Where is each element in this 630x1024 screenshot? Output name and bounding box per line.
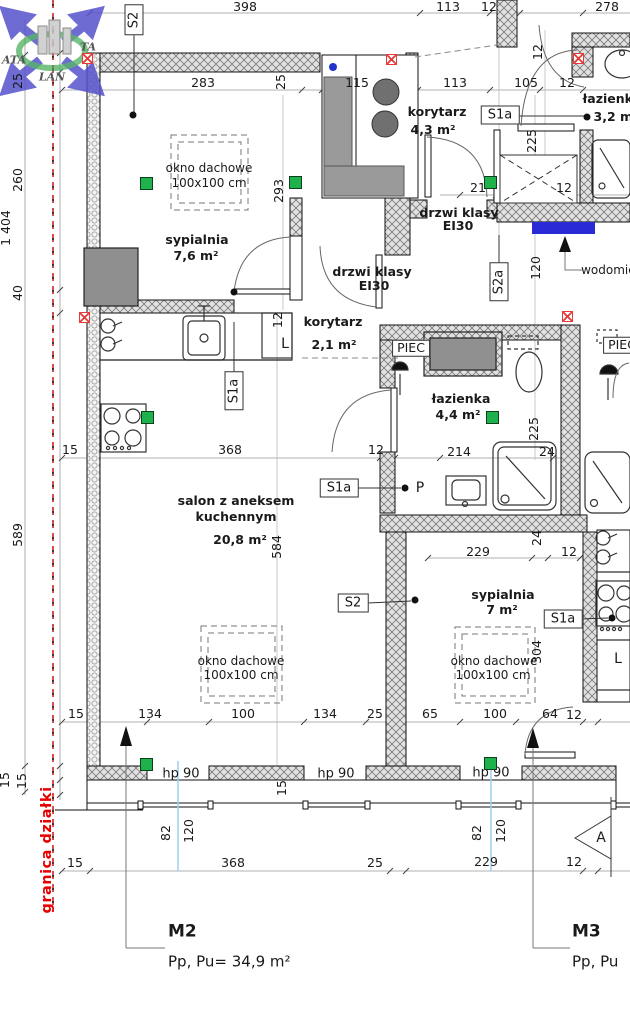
dim-label: 113: [436, 1, 460, 14]
door-swing-arc: [234, 237, 290, 292]
room-area-lazienka-44: 4,4 m²: [436, 409, 481, 422]
door-leaf: [425, 135, 431, 197]
dim-label: 12: [532, 44, 545, 60]
dim-label: 225: [526, 129, 539, 153]
dim-label: 82: [471, 825, 484, 841]
vent-marker-icon: [140, 177, 153, 190]
room-name-korytarz-21: korytarz: [304, 316, 363, 329]
s1a-tag: S1a: [225, 372, 244, 411]
reference-dot: [584, 114, 591, 121]
room-area-sypialnia-7: 7 m²: [486, 604, 518, 617]
dim-label: 368: [221, 857, 245, 870]
dim-label: 1 404: [0, 210, 12, 246]
vent-marker-icon: [289, 176, 302, 189]
m2-arrow: [120, 726, 132, 746]
s1a-tag: S1a: [481, 106, 520, 125]
toilet: [508, 336, 542, 392]
room-area-korytarz-21: 2,1 m²: [312, 339, 357, 352]
room-area-lazienka-32: 3,2 m²: [594, 111, 630, 124]
reference-dot: [231, 289, 238, 296]
dim-label: 229: [474, 856, 498, 869]
dim-label: 15: [68, 708, 84, 721]
dim-label: 115: [345, 77, 369, 90]
dim-label: 120: [495, 819, 508, 843]
dim-label: 584: [271, 535, 284, 559]
skylight-size: 100x100 cm: [455, 669, 530, 681]
skylight-size: 100x100 cm: [203, 669, 278, 681]
dim-label: 15: [0, 772, 11, 788]
dim-label: 65: [422, 708, 438, 721]
dim-label: 134: [138, 708, 162, 721]
floor-plan-drawing: [0, 0, 630, 1024]
apartment-m3-title: M3: [572, 924, 601, 941]
vent-marker-icon: [484, 757, 497, 770]
furnace: [424, 332, 502, 376]
dim-label: 100: [483, 708, 507, 721]
stove: [101, 404, 146, 452]
dim-label: 589: [12, 523, 25, 547]
room-name-lazienka-32: łazienka: [583, 93, 630, 106]
blue-point-marker: [329, 63, 337, 71]
room-name-sypialnia-76: sypialnia: [165, 234, 228, 247]
dim-label: 15: [276, 780, 289, 796]
room-name-lazienka-44: łazienka: [432, 393, 491, 406]
s1a-tag: S1a: [320, 479, 359, 498]
dim-label: 40: [12, 285, 25, 301]
reference-dot: [609, 615, 616, 622]
water-meter-arrow: [559, 236, 571, 252]
dim-label: 24: [531, 530, 544, 546]
furnace-label: PIEC: [392, 340, 430, 357]
watermark-text: LAN: [39, 72, 65, 83]
skylight-label: okno dachowe: [198, 655, 285, 667]
room-name-salon: kuchennym: [196, 511, 277, 524]
plot-boundary-label: granica działki: [40, 786, 55, 913]
room-name-salon: salon z aneksem: [178, 495, 295, 508]
dim-label: 82: [160, 825, 173, 841]
red-cross-marker-icon: [386, 54, 397, 65]
watermark-text: TA: [80, 42, 96, 53]
red-cross-marker-icon: [573, 53, 584, 64]
dim-label: 293: [273, 179, 286, 203]
door-class-label: drzwi klasy: [332, 266, 411, 279]
s2-tag: S2: [338, 594, 369, 613]
kitchen-counter: [100, 313, 292, 360]
s2a-tag: S2a: [490, 263, 509, 302]
dim-label: 12: [566, 856, 582, 869]
dim-label: 260: [12, 168, 25, 192]
washbasin-m3-top: [605, 50, 630, 78]
vent-marker-icon: [484, 176, 497, 189]
dim-label: 25: [12, 73, 25, 89]
dim-label: 120: [183, 819, 196, 843]
dim-label: 25: [275, 74, 288, 90]
dim-label: 12: [368, 444, 384, 457]
apartment-m3-area: Pp, Pu: [572, 955, 618, 970]
vent-marker-icon: [140, 758, 153, 771]
dim-label: 15: [67, 857, 83, 870]
floor-plan: 398113122782832511511310512121 404252604…: [0, 0, 630, 1024]
water-meter-icon: [532, 222, 595, 234]
door-class-label: EI30: [359, 280, 390, 293]
red-cross-marker-icon: [82, 53, 93, 64]
door-leaf: [234, 289, 290, 294]
dim-label: 15: [62, 444, 78, 457]
room-area-salon: 20,8 m²: [213, 534, 267, 547]
m3-arrow: [527, 728, 539, 748]
door-leaf: [391, 388, 397, 452]
dim-label: 12: [561, 546, 577, 559]
shower-m3: [585, 452, 630, 513]
room-area-sypialnia-76: 7,6 m²: [174, 250, 219, 263]
room-name-korytarz-43: korytarz: [408, 106, 467, 119]
room-area-korytarz-43: 4,3 m²: [411, 124, 456, 137]
dim-label: 64: [542, 708, 558, 721]
dim-label: 225: [528, 417, 541, 441]
parapet-height-label: hp 90: [317, 768, 354, 781]
watermark-text: ATA: [2, 55, 26, 66]
dim-label: 113: [443, 77, 467, 90]
dim-label: 24: [539, 446, 555, 459]
dim-label: 100: [231, 708, 255, 721]
room-name-sypialnia-7: sypialnia: [471, 589, 534, 602]
section-marker-label: A: [596, 831, 606, 845]
apartment-m2-area: Pp, Pu= 34,9 m²: [168, 955, 291, 970]
red-cross-marker-icon: [79, 312, 90, 323]
skylight-label: okno dachowe: [451, 655, 538, 667]
dim-label: 283: [191, 77, 215, 90]
reference-dot: [412, 597, 419, 604]
fridge-label: L: [614, 652, 622, 666]
dim-label: 12: [556, 182, 572, 195]
dim-label: 214: [447, 446, 471, 459]
door-class-label: EI30: [443, 220, 474, 233]
dim-label: 12: [566, 709, 582, 722]
kitchen-m3: [596, 330, 630, 690]
red-cross-marker-icon: [562, 311, 573, 322]
washbasin: [446, 476, 486, 507]
s1a-tag: S1a: [544, 610, 583, 629]
window: [611, 801, 630, 809]
bathtub: [592, 140, 630, 198]
dim-label: 25: [367, 857, 383, 870]
dim-label: 398: [233, 1, 257, 14]
skylight-label: okno dachowe: [166, 162, 253, 174]
dim-label: 105: [514, 77, 538, 90]
dim-label: 12: [272, 312, 285, 328]
dim-label: 368: [218, 444, 242, 457]
dim-label: 12: [481, 1, 497, 14]
installation-shaft: [322, 55, 418, 198]
dim-label: 229: [466, 546, 490, 559]
dim-label: 278: [595, 1, 619, 14]
dim-label: 12: [559, 77, 575, 90]
reference-dot: [402, 485, 409, 492]
apartment-m2-title: M2: [168, 924, 197, 941]
water-meter-label: wodomierz: [581, 264, 630, 276]
reference-dot: [130, 112, 137, 119]
vent-marker-icon: [141, 411, 154, 424]
parapet-height-label: hp 90: [162, 768, 199, 781]
fridge-label: L: [281, 337, 289, 351]
skylight-size: 100x100 cm: [171, 177, 246, 189]
dim-label: 25: [367, 708, 383, 721]
p-point-label: P: [416, 481, 424, 495]
dim-label: 134: [313, 708, 337, 721]
vent-marker-icon: [486, 411, 499, 424]
wardrobe: [84, 248, 138, 306]
dim-label: 120: [530, 256, 543, 280]
furnace-label: PIEC: [603, 337, 630, 354]
s2-tag: S2: [125, 5, 144, 36]
dim-label: 15: [16, 773, 29, 789]
